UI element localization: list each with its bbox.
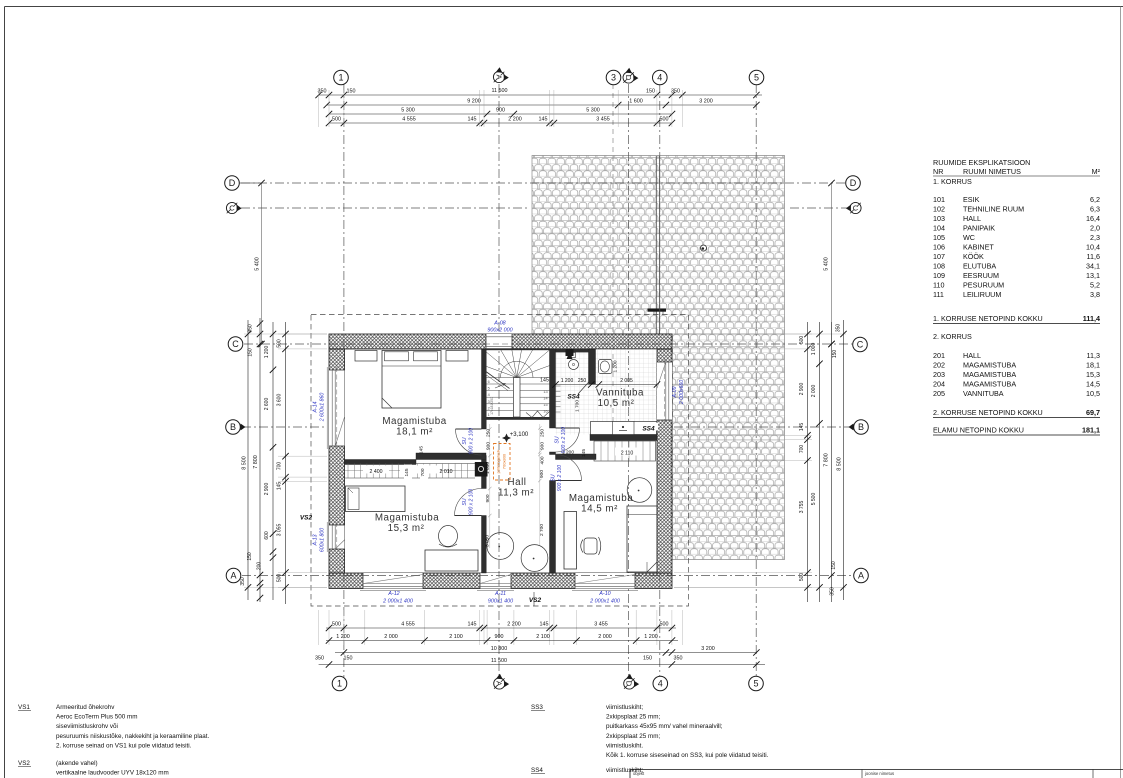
svg-text:103: 103 xyxy=(933,214,945,223)
svg-text:2xkipsplaat 25 mm;: 2xkipsplaat 25 mm; xyxy=(606,733,660,740)
svg-text:NR: NR xyxy=(933,167,943,176)
svg-text:16: 16 xyxy=(543,410,547,414)
svg-text:5: 5 xyxy=(488,387,490,391)
svg-text:10,5: 10,5 xyxy=(1086,389,1100,398)
svg-text:350: 350 xyxy=(315,656,324,662)
svg-text:2 400: 2 400 xyxy=(370,469,383,475)
svg-text:145: 145 xyxy=(540,622,549,628)
svg-text:900 x 2 100: 900 x 2 100 xyxy=(469,428,475,454)
svg-text:Magamistuba: Magamistuba xyxy=(382,416,446,427)
svg-text:700x800: 700x800 xyxy=(502,453,507,469)
svg-text:SS4: SS4 xyxy=(567,394,580,401)
svg-text:900x2 000: 900x2 000 xyxy=(487,328,512,334)
svg-text:2 900: 2 900 xyxy=(799,383,805,396)
svg-text:6,2: 6,2 xyxy=(1090,195,1100,204)
svg-text:500: 500 xyxy=(332,117,341,123)
svg-text:VANNITUBA: VANNITUBA xyxy=(963,389,1004,398)
svg-text:2 110: 2 110 xyxy=(621,451,634,457)
svg-text:Armeeritud õhekrohv: Armeeritud õhekrohv xyxy=(56,704,115,711)
svg-text:150: 150 xyxy=(344,656,353,662)
svg-text:900: 900 xyxy=(486,442,492,450)
svg-text:C: C xyxy=(857,340,864,350)
svg-text:D: D xyxy=(850,178,857,188)
svg-text:11,6: 11,6 xyxy=(1087,252,1100,261)
svg-text:145: 145 xyxy=(799,423,805,432)
svg-text:2xkipsplaat 25 mm;: 2xkipsplaat 25 mm; xyxy=(606,714,660,721)
svg-text:joonise nimetus: joonise nimetus xyxy=(864,771,894,776)
svg-text:104: 104 xyxy=(933,224,945,233)
svg-text:150: 150 xyxy=(247,552,253,561)
svg-text:B: B xyxy=(230,422,236,432)
svg-text:145: 145 xyxy=(419,446,425,454)
svg-text:3 200: 3 200 xyxy=(699,99,713,105)
svg-text:Hall: Hall xyxy=(508,477,527,488)
svg-text:Kõik 1. korruse siseseinad on: Kõik 1. korruse siseseinad on SS3, kui p… xyxy=(606,752,769,759)
svg-text:181,1: 181,1 xyxy=(1082,426,1100,435)
svg-text:1: 1 xyxy=(338,73,343,83)
svg-text:1 200: 1 200 xyxy=(264,346,270,359)
svg-text:ELUTUBA: ELUTUBA xyxy=(963,262,996,271)
svg-text:500: 500 xyxy=(332,622,341,628)
svg-text:109: 109 xyxy=(933,271,945,280)
svg-text:14,5 m²: 14,5 m² xyxy=(581,504,618,515)
svg-text:2 100: 2 100 xyxy=(449,634,463,640)
svg-text:M²: M² xyxy=(1092,167,1101,176)
svg-text:8 500: 8 500 xyxy=(837,457,843,471)
svg-text:A-08: A-08 xyxy=(493,321,505,327)
svg-text:LEILIRUUM: LEILIRUUM xyxy=(963,290,1001,299)
svg-text:A-09: A-09 xyxy=(672,386,678,398)
svg-text:600: 600 xyxy=(264,531,270,540)
svg-text:1: 1 xyxy=(337,679,342,689)
svg-text:145: 145 xyxy=(468,622,477,628)
svg-text:145: 145 xyxy=(540,378,549,384)
svg-text:15,3 m²: 15,3 m² xyxy=(388,523,425,534)
svg-text:205: 205 xyxy=(933,389,945,398)
svg-text:350: 350 xyxy=(836,324,842,333)
svg-text:pööninguluuk: pööninguluuk xyxy=(495,450,500,474)
svg-text:2. KORRUSE NETOPIND KOKKU: 2. KORRUSE NETOPIND KOKKU xyxy=(933,408,1043,417)
svg-text:ESIK: ESIK xyxy=(963,195,980,204)
svg-text:145: 145 xyxy=(404,468,410,476)
svg-text:2 600: 2 600 xyxy=(264,398,270,411)
svg-text:2 600x1 860: 2 600x1 860 xyxy=(320,393,326,423)
svg-text:D: D xyxy=(229,178,236,188)
svg-text:pesuruumis niiskustõke, nakkek: pesuruumis niiskustõke, nakkekiht ja ker… xyxy=(56,733,210,740)
svg-text:10 800: 10 800 xyxy=(491,646,508,652)
svg-text:2,3: 2,3 xyxy=(1090,233,1100,242)
svg-text:9 200: 9 200 xyxy=(467,99,481,105)
svg-text:200: 200 xyxy=(257,562,263,571)
svg-text:17x181/250: 17x181/250 xyxy=(490,397,494,415)
svg-text:3 055: 3 055 xyxy=(277,524,283,537)
svg-text:1. KORRUSE NETOPIND KOKKU: 1. KORRUSE NETOPIND KOKKU xyxy=(933,314,1043,323)
svg-text:350: 350 xyxy=(318,89,327,95)
svg-text:350: 350 xyxy=(674,656,683,662)
svg-text:VS2: VS2 xyxy=(529,597,542,604)
svg-text:C: C xyxy=(853,204,859,213)
svg-text:3: 3 xyxy=(611,73,616,83)
svg-text:3 200: 3 200 xyxy=(701,646,715,652)
svg-text:900 x 2 100: 900 x 2 100 xyxy=(469,489,475,515)
svg-text:10,4: 10,4 xyxy=(1086,243,1100,252)
svg-text:13: 13 xyxy=(543,390,547,394)
svg-text:203: 203 xyxy=(933,370,945,379)
svg-text:A-14: A-14 xyxy=(313,401,319,413)
svg-text:VS2: VS2 xyxy=(18,760,30,767)
svg-text:6,3: 6,3 xyxy=(1090,205,1100,214)
svg-text:D: D xyxy=(624,75,633,81)
svg-text:Vannituba: Vannituba xyxy=(596,388,644,399)
svg-text:A: A xyxy=(494,74,503,79)
svg-text:11 500: 11 500 xyxy=(491,88,507,94)
svg-text:106: 106 xyxy=(933,243,945,252)
svg-text:VS1: VS1 xyxy=(18,704,30,711)
svg-text:150: 150 xyxy=(248,348,254,357)
svg-text:8 500: 8 500 xyxy=(242,456,248,470)
svg-text:150: 150 xyxy=(832,350,838,359)
svg-text:4: 4 xyxy=(658,679,663,689)
svg-text:700: 700 xyxy=(420,468,426,476)
svg-text:10,5 m²: 10,5 m² xyxy=(598,398,635,409)
svg-text:500: 500 xyxy=(660,117,669,123)
svg-text:13,1: 13,1 xyxy=(1086,271,1100,280)
svg-text:+3,100: +3,100 xyxy=(510,432,529,438)
svg-text:101: 101 xyxy=(933,195,945,204)
svg-text:2 100: 2 100 xyxy=(536,634,550,640)
svg-text:TEHNILINE RUUM: TEHNILINE RUUM xyxy=(963,205,1024,214)
svg-text:1 200: 1 200 xyxy=(644,634,658,640)
svg-text:SU: SU xyxy=(555,436,561,443)
svg-text:2 000x1 400: 2 000x1 400 xyxy=(589,599,620,605)
svg-text:105: 105 xyxy=(933,233,945,242)
svg-text:2 200: 2 200 xyxy=(507,622,521,628)
svg-text:A: A xyxy=(858,571,864,581)
svg-text:18,1 m²: 18,1 m² xyxy=(396,427,433,438)
svg-text:3,8: 3,8 xyxy=(1090,290,1100,299)
svg-text:MAGAMISTUBA: MAGAMISTUBA xyxy=(963,380,1016,389)
svg-text:3 600: 3 600 xyxy=(277,394,283,407)
svg-text:7 800: 7 800 xyxy=(253,455,259,469)
svg-text:B: B xyxy=(858,422,864,432)
svg-text:900: 900 xyxy=(539,470,545,478)
svg-text:2 900: 2 900 xyxy=(264,483,270,496)
svg-text:RUUMI NIMETUS: RUUMI NIMETUS xyxy=(963,167,1021,176)
svg-text:14: 14 xyxy=(543,397,547,401)
svg-text:108: 108 xyxy=(933,262,945,271)
svg-text:3 050: 3 050 xyxy=(485,535,491,547)
svg-text:500: 500 xyxy=(277,339,283,348)
svg-text:600x1 800: 600x1 800 xyxy=(320,528,326,552)
svg-text:150: 150 xyxy=(347,89,356,95)
svg-text:objekt: objekt xyxy=(633,771,645,776)
svg-text:2 005: 2 005 xyxy=(620,378,633,384)
svg-text:900 x 2 100: 900 x 2 100 xyxy=(561,427,567,453)
svg-text:7 800: 7 800 xyxy=(824,453,830,467)
svg-text:111: 111 xyxy=(933,290,944,299)
svg-text:400: 400 xyxy=(540,456,546,464)
svg-text:SU: SU xyxy=(462,498,468,505)
svg-text:SS4: SS4 xyxy=(531,767,543,774)
svg-text:A: A xyxy=(230,571,236,581)
svg-text:15,3: 15,3 xyxy=(1086,370,1100,379)
svg-text:2. korruse seinad on VS1 kui p: 2. korruse seinad on VS1 kui pole viidat… xyxy=(56,742,192,749)
svg-text:SS4: SS4 xyxy=(642,426,655,433)
svg-text:900 x 2 100: 900 x 2 100 xyxy=(557,465,563,491)
svg-text:2. KORRUS: 2. KORRUS xyxy=(933,332,972,341)
svg-text:5,2: 5,2 xyxy=(1090,281,1100,290)
svg-text:14,5: 14,5 xyxy=(1086,380,1100,389)
svg-text:KÖÖK: KÖÖK xyxy=(963,252,984,261)
svg-text:250: 250 xyxy=(578,378,587,384)
svg-text:4: 4 xyxy=(488,393,490,397)
svg-text:16,4: 16,4 xyxy=(1086,214,1100,223)
svg-text:5 400: 5 400 xyxy=(824,257,830,271)
svg-text:MAGAMISTUBA: MAGAMISTUBA xyxy=(963,361,1016,370)
svg-text:2 200: 2 200 xyxy=(508,117,522,123)
svg-text:A: A xyxy=(495,681,504,686)
svg-text:HALL: HALL xyxy=(963,351,981,360)
svg-text:6: 6 xyxy=(488,380,490,384)
svg-text:A-12: A-12 xyxy=(387,591,399,597)
svg-text:1 200: 1 200 xyxy=(336,634,350,640)
svg-text:110: 110 xyxy=(933,281,944,290)
svg-text:1 050: 1 050 xyxy=(485,462,491,474)
svg-text:500: 500 xyxy=(799,336,805,345)
svg-text:5 400: 5 400 xyxy=(255,257,261,271)
svg-text:5 300: 5 300 xyxy=(401,108,415,114)
svg-text:700: 700 xyxy=(277,462,283,471)
svg-text:4: 4 xyxy=(657,73,662,83)
svg-text:145: 145 xyxy=(581,449,587,457)
svg-text:18,1: 18,1 xyxy=(1086,361,1100,370)
svg-text:250: 250 xyxy=(540,429,546,437)
svg-text:4 555: 4 555 xyxy=(402,117,416,123)
svg-text:3 755: 3 755 xyxy=(799,501,805,514)
svg-text:1 200: 1 200 xyxy=(613,360,619,372)
svg-text:150: 150 xyxy=(831,561,837,570)
svg-text:(akende vahel): (akende vahel) xyxy=(56,760,98,767)
svg-text:107: 107 xyxy=(933,252,945,261)
svg-text:SU: SU xyxy=(551,474,557,481)
svg-text:700: 700 xyxy=(799,445,805,454)
svg-text:111,4: 111,4 xyxy=(1083,314,1100,323)
svg-text:5 300: 5 300 xyxy=(586,108,600,114)
svg-text:1 700: 1 700 xyxy=(575,400,581,412)
svg-text:viimistluskiht.: viimistluskiht. xyxy=(606,742,643,749)
svg-text:5: 5 xyxy=(753,679,758,689)
svg-text:145: 145 xyxy=(277,482,283,491)
svg-text:2 000x1 400: 2 000x1 400 xyxy=(382,599,413,605)
svg-text:69,7: 69,7 xyxy=(1086,408,1100,417)
svg-text:Magamistuba: Magamistuba xyxy=(569,493,633,504)
svg-text:900x1 400: 900x1 400 xyxy=(488,599,513,605)
svg-text:900: 900 xyxy=(496,108,505,114)
svg-text:350: 350 xyxy=(240,577,246,586)
svg-text:145: 145 xyxy=(468,117,477,123)
svg-text:puitkarkass 45x95 mm/ vahel mi: puitkarkass 45x95 mm/ vahel mineraalvill… xyxy=(606,723,723,730)
svg-text:C: C xyxy=(229,204,235,213)
svg-text:11,3: 11,3 xyxy=(1087,351,1100,360)
svg-text:102: 102 xyxy=(933,205,945,214)
svg-text:SS3: SS3 xyxy=(531,704,543,711)
svg-text:VS2: VS2 xyxy=(300,515,313,522)
svg-text:350: 350 xyxy=(830,587,836,596)
svg-text:150: 150 xyxy=(643,656,652,662)
svg-text:500: 500 xyxy=(277,574,283,583)
svg-text:2 000x660: 2 000x660 xyxy=(679,380,685,405)
svg-text:350: 350 xyxy=(248,324,254,333)
svg-text:3 455: 3 455 xyxy=(596,117,610,123)
svg-text:204: 204 xyxy=(933,380,945,389)
svg-text:ELAMU NETOPIND KOKKU: ELAMU NETOPIND KOKKU xyxy=(933,426,1024,435)
svg-text:900: 900 xyxy=(540,442,546,450)
svg-text:KABINET: KABINET xyxy=(963,243,994,252)
svg-text:C: C xyxy=(232,339,239,349)
svg-text:4 555: 4 555 xyxy=(401,622,415,628)
svg-text:EESRUUM: EESRUUM xyxy=(963,271,999,280)
svg-text:150: 150 xyxy=(646,89,655,95)
svg-text:A-11: A-11 xyxy=(494,591,506,597)
svg-text:HALL: HALL xyxy=(963,214,981,223)
svg-text:2 700: 2 700 xyxy=(539,524,545,536)
svg-text:RUUMIDE EKSPLIKATSIOON: RUUMIDE EKSPLIKATSIOON xyxy=(933,158,1030,167)
svg-text:SU: SU xyxy=(462,437,468,444)
svg-text:5 500: 5 500 xyxy=(811,493,817,506)
svg-text:201: 201 xyxy=(933,351,945,360)
svg-text:34,1: 34,1 xyxy=(1086,262,1100,271)
svg-text:2 010: 2 010 xyxy=(440,469,453,475)
svg-text:500: 500 xyxy=(799,573,805,582)
svg-text:viimistluskiht;: viimistluskiht; xyxy=(606,704,643,711)
svg-text:900: 900 xyxy=(495,634,504,640)
svg-text:PESURUUM: PESURUUM xyxy=(963,281,1004,290)
svg-text:siseviimistluskrohv või: siseviimistluskrohv või xyxy=(56,723,118,730)
svg-text:MAGAMISTUBA: MAGAMISTUBA xyxy=(963,370,1016,379)
svg-text:11 500: 11 500 xyxy=(491,658,507,664)
svg-text:145: 145 xyxy=(539,117,548,123)
svg-text:2 000: 2 000 xyxy=(384,634,398,640)
svg-text:250: 250 xyxy=(486,429,492,437)
svg-text:2 000: 2 000 xyxy=(598,634,612,640)
svg-text:1 600: 1 600 xyxy=(629,99,643,105)
svg-text:1 000: 1 000 xyxy=(811,343,817,356)
svg-text:1 200: 1 200 xyxy=(561,378,574,384)
svg-text:D: D xyxy=(625,681,634,687)
svg-text:15: 15 xyxy=(543,403,547,407)
svg-text:5: 5 xyxy=(754,73,759,83)
svg-text:202: 202 xyxy=(933,361,945,370)
svg-text:PANIPAIK: PANIPAIK xyxy=(963,224,995,233)
svg-text:A-13: A-13 xyxy=(313,534,319,546)
svg-text:350: 350 xyxy=(671,89,680,95)
svg-text:2,0: 2,0 xyxy=(1090,224,1100,233)
svg-text:500: 500 xyxy=(660,622,669,628)
svg-text:WC: WC xyxy=(963,233,975,242)
svg-text:Magamistuba: Magamistuba xyxy=(375,513,439,524)
svg-text:1. KORRUS: 1. KORRUS xyxy=(933,177,972,186)
svg-text:11,3 m²: 11,3 m² xyxy=(498,488,534,499)
svg-text:A-10: A-10 xyxy=(598,591,610,597)
svg-text:3 455: 3 455 xyxy=(594,622,608,628)
svg-text:900: 900 xyxy=(485,494,491,502)
svg-text:2 000: 2 000 xyxy=(811,385,817,398)
svg-text:vertikaalne laudvooder UYV 18x: vertikaalne laudvooder UYV 18x120 mm xyxy=(56,770,169,777)
svg-text:Aeroc EcoTerm Plus 500 mm: Aeroc EcoTerm Plus 500 mm xyxy=(56,714,138,721)
